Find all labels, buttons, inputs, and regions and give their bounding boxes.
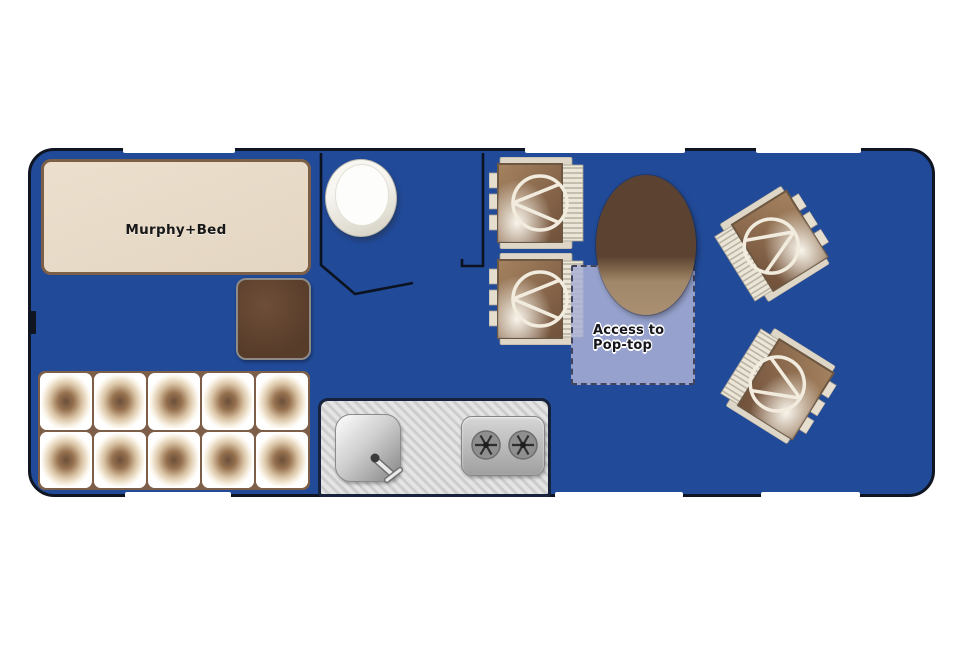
toilet-bowl <box>335 164 389 225</box>
burner-icon <box>509 431 537 459</box>
murphy-bed: Murphy+Bed <box>41 159 311 275</box>
cushion-cell <box>40 373 92 430</box>
vehicle-body: Murphy+Bed <box>28 148 935 497</box>
ottoman <box>236 278 311 360</box>
cushion-cell <box>148 432 200 489</box>
cushion-cell <box>256 373 308 430</box>
cab-seat-lower <box>713 320 845 450</box>
cushion-cell <box>202 373 254 430</box>
window-bottom-front <box>761 492 860 498</box>
storage-cushions <box>38 371 310 490</box>
cab-seat-upper <box>707 180 839 310</box>
window-top-middle <box>525 147 685 153</box>
dinette-chair-front <box>489 157 587 249</box>
burner-icon <box>472 431 500 459</box>
murphy-bed-label: Murphy+Bed <box>125 222 226 238</box>
window-top-rear <box>123 147 235 153</box>
cushion-cell <box>256 432 308 489</box>
window-bottom-middle <box>555 492 683 498</box>
cushion-cell <box>202 432 254 489</box>
cushion-cell <box>148 373 200 430</box>
stove <box>461 416 545 476</box>
cushion-cell <box>40 432 92 489</box>
cushion-cell <box>94 432 146 489</box>
window-top-front <box>756 147 861 153</box>
side-door-marker <box>30 311 36 334</box>
kitchen-counter <box>318 398 551 497</box>
cushion-cell <box>94 373 146 430</box>
dining-table <box>596 175 696 315</box>
toilet <box>325 159 397 237</box>
window-bottom-rear <box>125 492 231 498</box>
pop-top-label: Access to Pop-top <box>593 323 664 353</box>
